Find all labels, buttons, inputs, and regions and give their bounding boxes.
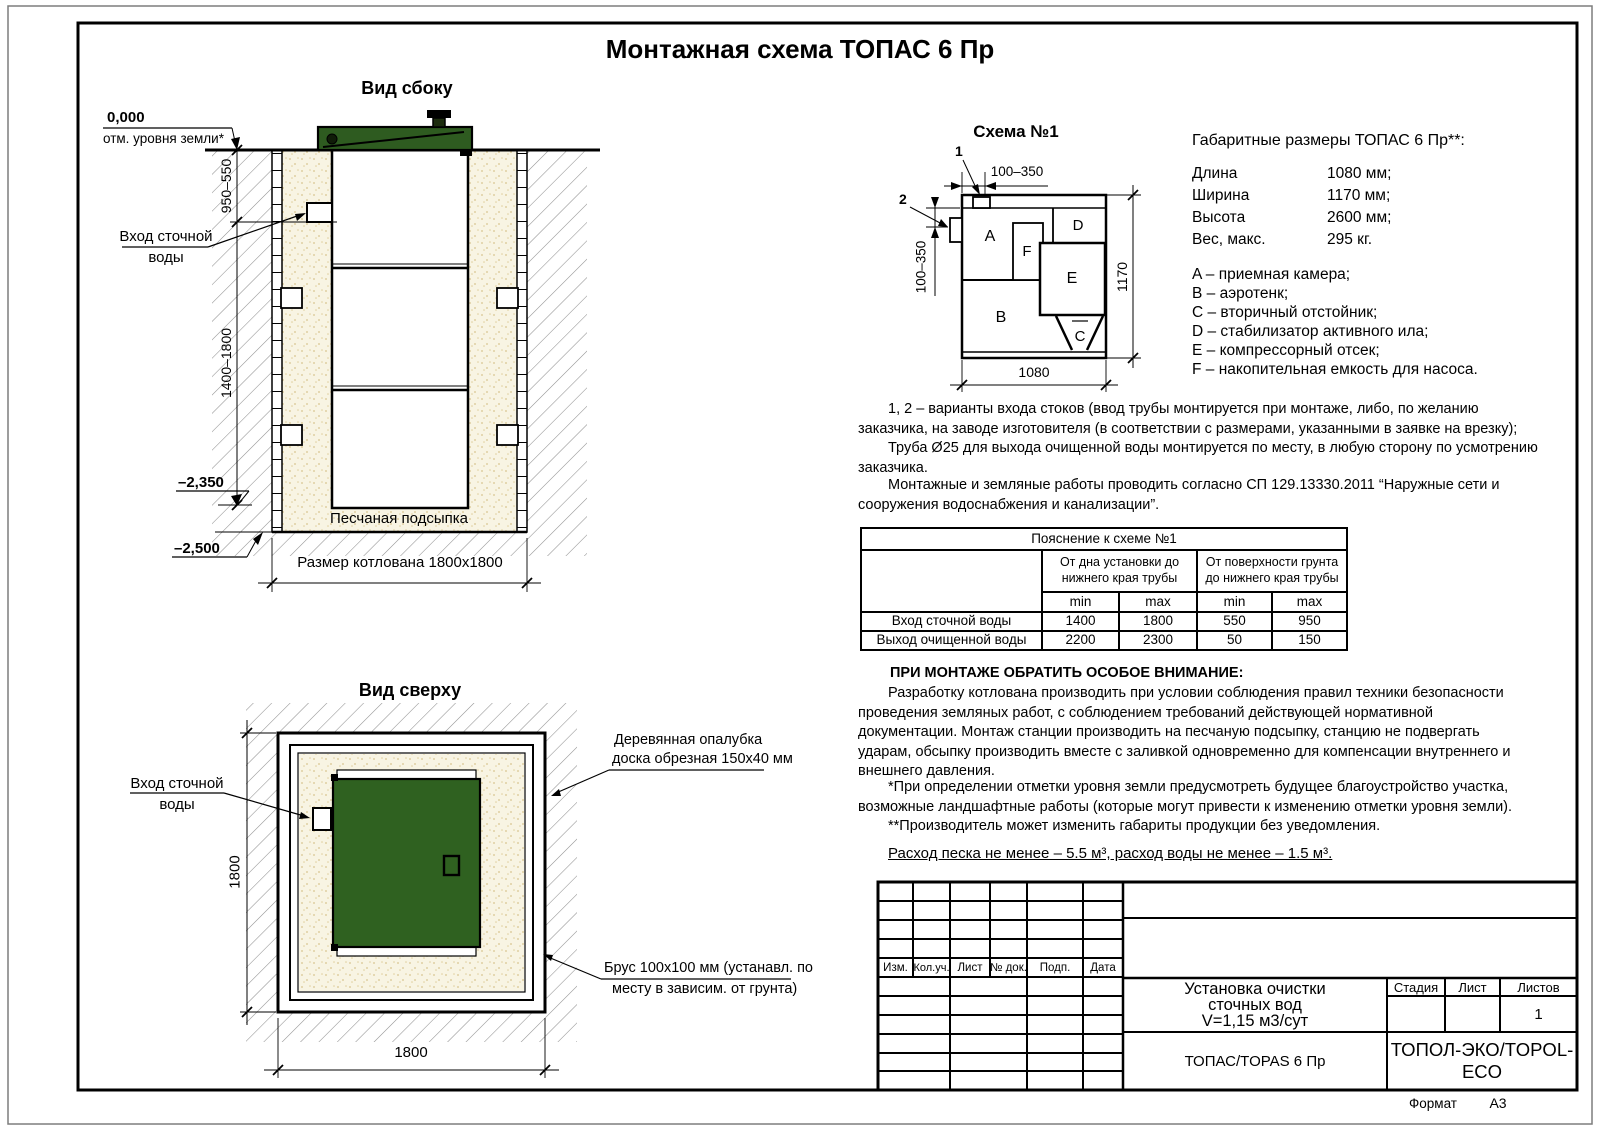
schema-callout-1: 1	[955, 143, 963, 159]
legend-item: A – приемная камера;	[1192, 266, 1350, 284]
product-name: ТОПАС/TOPAS 6 Пр	[1123, 1032, 1387, 1090]
top-dim-left: 1800	[227, 855, 244, 888]
compartment-label-b: B	[996, 309, 1007, 327]
format-label: Формат	[1398, 1094, 1468, 1112]
level-zero-label: отм. уровня земли*	[103, 131, 224, 146]
beam-label-1: Брус 100x100 мм (устанавл. по	[604, 960, 813, 976]
tb-col-koluch: Кол.уч.	[913, 958, 950, 977]
table-max-header: max	[1119, 592, 1197, 612]
schema-explanation-table: Пояснение к схеме №1 От дна установки до…	[860, 527, 1348, 651]
attention-body: Разработку котлована производить при усл…	[858, 684, 1536, 782]
compartment-label-d: D	[1073, 217, 1084, 234]
spec-value: 1080 мм;	[1327, 165, 1391, 183]
attention-title: ПРИ МОНТАЖЕ ОБРАТИТЬ ОСОБОЕ ВНИМАНИЕ:	[890, 665, 1243, 681]
dim-depth-lower: 1400–1800	[218, 328, 234, 398]
table-row: Вход сточной воды 1400 1800 550 950	[861, 612, 1347, 631]
soil-hatch-right	[527, 150, 587, 532]
top-view-title: Вид сверху	[359, 680, 461, 701]
lid-knob	[327, 134, 337, 144]
inlet-pipe-side	[307, 203, 332, 222]
spec-label: Высота	[1192, 209, 1245, 227]
schema-callout-2: 2	[899, 191, 907, 207]
spec-label: Длина	[1192, 165, 1237, 183]
format-value: А3	[1478, 1094, 1518, 1112]
note-sp: Монтажные и земляные работы проводить со…	[858, 476, 1538, 515]
dim-depth-upper: 950–550	[218, 159, 234, 214]
schema-dim-right: 1170	[1114, 262, 1130, 292]
schema-title: Схема №1	[973, 122, 1058, 142]
schema-dim-left: 100–350	[914, 241, 929, 294]
inlet-pipe-top	[313, 808, 331, 830]
inlet-variant-2	[950, 218, 962, 242]
footnote-1: *При определении отметки уровня земли пр…	[858, 778, 1540, 817]
tank-body	[332, 150, 468, 508]
level-minus-2500: –2,500	[174, 540, 220, 557]
compartment-label-e: E	[1067, 270, 1078, 288]
inlet-variant-1	[973, 197, 990, 208]
note-1a: 1, 2 – варианты входа стоков (ввод трубы…	[858, 400, 1538, 439]
clamp	[497, 288, 518, 308]
footnote-2: **Производитель может изменить габариты …	[858, 817, 1540, 837]
table-min-header: min	[1042, 592, 1119, 612]
side-view-title: Вид сбоку	[361, 78, 452, 99]
spec-value: 1170 мм;	[1327, 187, 1390, 205]
top-dim-bottom: 1800	[394, 1044, 427, 1061]
spec-value: 2600 мм;	[1327, 209, 1391, 227]
inlet-label-side-1: Вход сточной	[119, 228, 212, 245]
drawing-sheet: Монтажная схема ТОПАС 6 Пр Вид сбоку 0,0…	[0, 0, 1600, 1131]
spec-label: Вес, макс.	[1192, 231, 1266, 249]
clamp	[497, 425, 518, 445]
clamp	[281, 288, 302, 308]
consumption-note: Расход песка не менее – 5.5 м³, расход в…	[888, 845, 1332, 862]
note-pipes: 1, 2 – варианты входа стоков (ввод трубы…	[858, 400, 1538, 478]
pit-size-dim: Размер котлована 1800x1800	[297, 554, 502, 571]
sand-label: Песчаная подсыпка	[330, 510, 468, 527]
sheets-value: 1	[1500, 996, 1577, 1032]
legend-item: E – компрессорный отсек;	[1192, 342, 1380, 360]
page-title: Монтажная схема ТОПАС 6 Пр	[606, 34, 995, 65]
note-1b: Труба Ø25 для выхода очищенной воды монт…	[858, 439, 1538, 478]
inlet-label-top-2: воды	[159, 796, 194, 813]
formwork-left	[272, 150, 282, 532]
schema-dim-top: 100–350	[991, 164, 1044, 179]
level-zero-mark: 0,000	[107, 109, 145, 126]
compartment-label-c: C	[1075, 328, 1086, 345]
table-group-1: От дна установки до нижнего края трубы	[1042, 550, 1197, 592]
clamp	[281, 425, 302, 445]
company-name: ТОПОЛ-ЭКО/TOPOL-ECO	[1387, 1032, 1577, 1090]
compartment-label-a: A	[985, 228, 996, 246]
doc-name-line3: V=1,15 м3/сут	[1123, 1013, 1387, 1030]
tb-col-podp: Подп.	[1027, 958, 1083, 977]
inlet-label-side-2: воды	[148, 249, 183, 266]
tb-col-list: Лист	[950, 958, 990, 977]
footnotes: *При определении отметки уровня земли пр…	[858, 778, 1540, 837]
spec-value: 295 кг.	[1327, 231, 1372, 249]
legend-item: B – аэротенк;	[1192, 285, 1288, 303]
note-2: Монтажные и земляные работы проводить со…	[858, 476, 1538, 515]
formwork-label-2: доска обрезная 150x40 мм	[612, 751, 793, 767]
sheet-label: Лист	[1445, 978, 1500, 996]
schema-dim-bottom: 1080	[1018, 364, 1049, 380]
specs-title: Габаритные размеры ТОПАС 6 Пр**:	[1192, 132, 1465, 150]
spec-label: Ширина	[1192, 187, 1249, 205]
table-group-2: От поверхности грунта до нижнего края тр…	[1197, 550, 1347, 592]
tb-col-ndok: № док.	[990, 958, 1027, 977]
tb-col-data: Дата	[1083, 958, 1123, 977]
vent-stem	[433, 118, 445, 127]
attention-body-wrap: Разработку котлована производить при усл…	[858, 684, 1536, 782]
legend-item: D – стабилизатор активного ила;	[1192, 323, 1428, 341]
table-min-header: min	[1197, 592, 1272, 612]
beam-label-2: месту в зависим. от грунта)	[612, 981, 797, 997]
table-max-header: max	[1272, 592, 1347, 612]
legend-item: C – вторичный отстойник;	[1192, 304, 1377, 322]
tb-col-izm: Изм.	[878, 958, 913, 977]
soil-hatch-bottom	[212, 532, 587, 556]
stage-label: Стадия	[1387, 978, 1445, 996]
table-title: Пояснение к схеме №1	[861, 528, 1347, 550]
table-row: Выход очищенной воды 2200 2300 50 150	[861, 631, 1347, 650]
formwork-right	[517, 150, 527, 532]
formwork-label-1: Деревянная опалубка	[614, 732, 762, 748]
inlet-label-top-1: Вход сточной	[130, 775, 223, 792]
sheets-label: Листов	[1500, 978, 1577, 996]
vent-cap	[427, 110, 451, 118]
legend-item: F – накопительная емкость для насоса.	[1192, 361, 1478, 379]
compartment-label-f: F	[1022, 243, 1031, 260]
schema-drawing	[910, 160, 1141, 392]
level-minus-2350: –2,350	[178, 474, 224, 491]
